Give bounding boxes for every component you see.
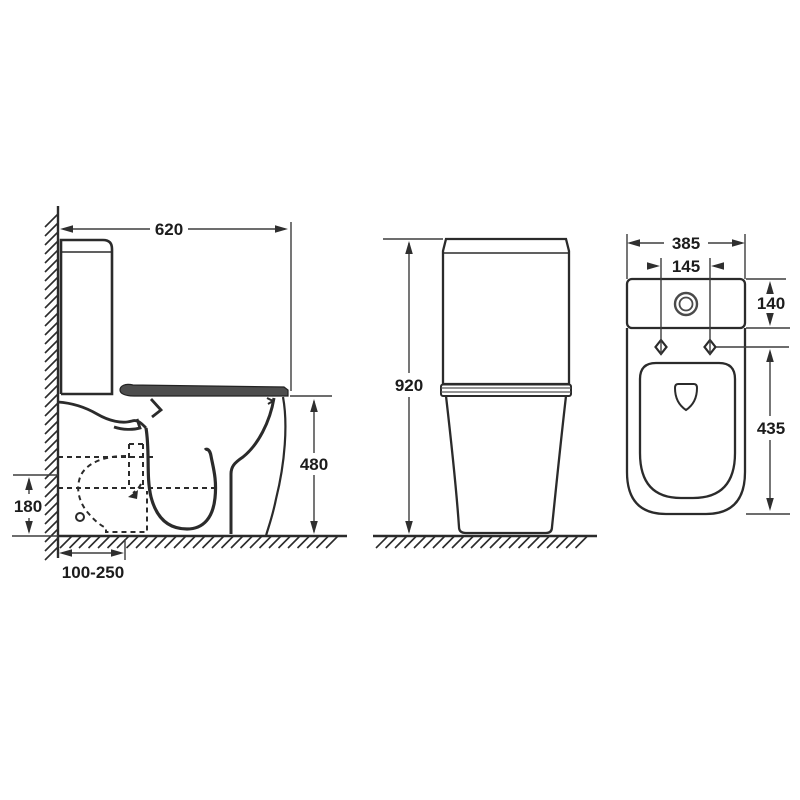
dim-385-label: 385 <box>672 234 700 253</box>
cistern-outline-side <box>61 240 112 394</box>
dim-920-label: 920 <box>395 376 423 395</box>
dim-145-label: 145 <box>672 257 700 276</box>
cistern-outline-front <box>443 239 569 384</box>
bowl-rear-shelf <box>58 402 146 428</box>
floor-hatch-front <box>376 536 588 548</box>
dim-fixing-centres: 145 <box>648 257 723 276</box>
dim-140-label: 140 <box>757 294 785 313</box>
dim-435-label: 435 <box>757 419 785 438</box>
flush-button-outer <box>675 293 697 315</box>
dim-180-label: 180 <box>14 497 42 516</box>
hidden-trapway <box>58 444 216 532</box>
toilet-technical-drawing: 620 480 180 100-250 920 <box>0 0 800 800</box>
bowl-interior-curve <box>146 428 216 529</box>
cistern-outline-top <box>627 279 745 328</box>
dim-overall-depth: 620 <box>63 220 291 391</box>
dim-480-label: 480 <box>300 455 328 474</box>
pedestal-outline-front <box>446 396 566 533</box>
dim-seat-height: 480 <box>290 396 332 532</box>
bowl-front-inner-curve <box>231 398 274 534</box>
flush-outlet-shape <box>675 384 697 410</box>
floor-hatch-side <box>60 536 338 548</box>
fixing-hole-mark <box>76 513 84 521</box>
pan-outline-top <box>627 328 745 514</box>
outlet-pipe-dashed <box>129 444 143 487</box>
seat-hinge-upper <box>151 399 161 417</box>
flush-button-inner <box>680 298 693 311</box>
dim-overall-height: 920 <box>383 239 443 532</box>
seat-band-front <box>441 385 571 397</box>
dim-cistern-depth: 140 <box>746 279 790 328</box>
flow-arrow-head <box>128 490 138 499</box>
front-view: 920 <box>373 239 597 548</box>
dim-620-lines <box>63 222 291 391</box>
dim-pan-depth: 435 <box>746 352 790 514</box>
wall-hatch <box>45 214 58 560</box>
dim-100-250-label: 100-250 <box>62 563 124 582</box>
seat-profile <box>120 384 288 396</box>
drawing-canvas: 620 480 180 100-250 920 <box>0 0 800 800</box>
seat-band-lines <box>441 388 571 392</box>
side-view: 620 480 180 100-250 <box>12 206 347 582</box>
dim-620-label: 620 <box>155 220 183 239</box>
top-view: 385 145 140 435 <box>627 234 790 514</box>
